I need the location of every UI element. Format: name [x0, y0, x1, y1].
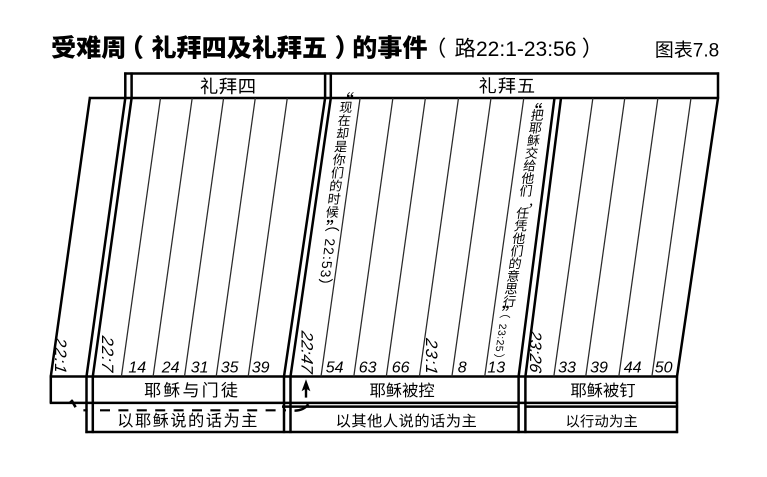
- svg-text:22:7: 22:7: [98, 334, 117, 374]
- svg-text:44: 44: [624, 360, 642, 377]
- svg-text:7.8: 7.8: [693, 41, 719, 62]
- svg-text:66: 66: [392, 360, 410, 377]
- svg-text:50: 50: [655, 360, 673, 377]
- svg-text:39: 39: [590, 360, 608, 377]
- svg-text:22:1: 22:1: [51, 335, 70, 375]
- svg-text:13: 13: [487, 360, 505, 377]
- svg-text:22:47: 22:47: [298, 329, 317, 376]
- svg-text:63: 63: [359, 360, 377, 377]
- svg-text:8: 8: [458, 360, 467, 377]
- svg-text:23:26: 23:26: [526, 328, 545, 375]
- svg-text:31: 31: [191, 360, 209, 377]
- svg-text:24: 24: [161, 360, 180, 377]
- svg-text:33: 33: [558, 360, 576, 377]
- svg-text:22:1-23:56: 22:1-23:56: [476, 38, 576, 61]
- svg-text:54: 54: [326, 360, 344, 377]
- svg-text:35: 35: [221, 360, 239, 377]
- svg-text:14: 14: [128, 360, 146, 377]
- svg-text:23:1: 23:1: [422, 336, 441, 376]
- svg-text:39: 39: [252, 360, 270, 377]
